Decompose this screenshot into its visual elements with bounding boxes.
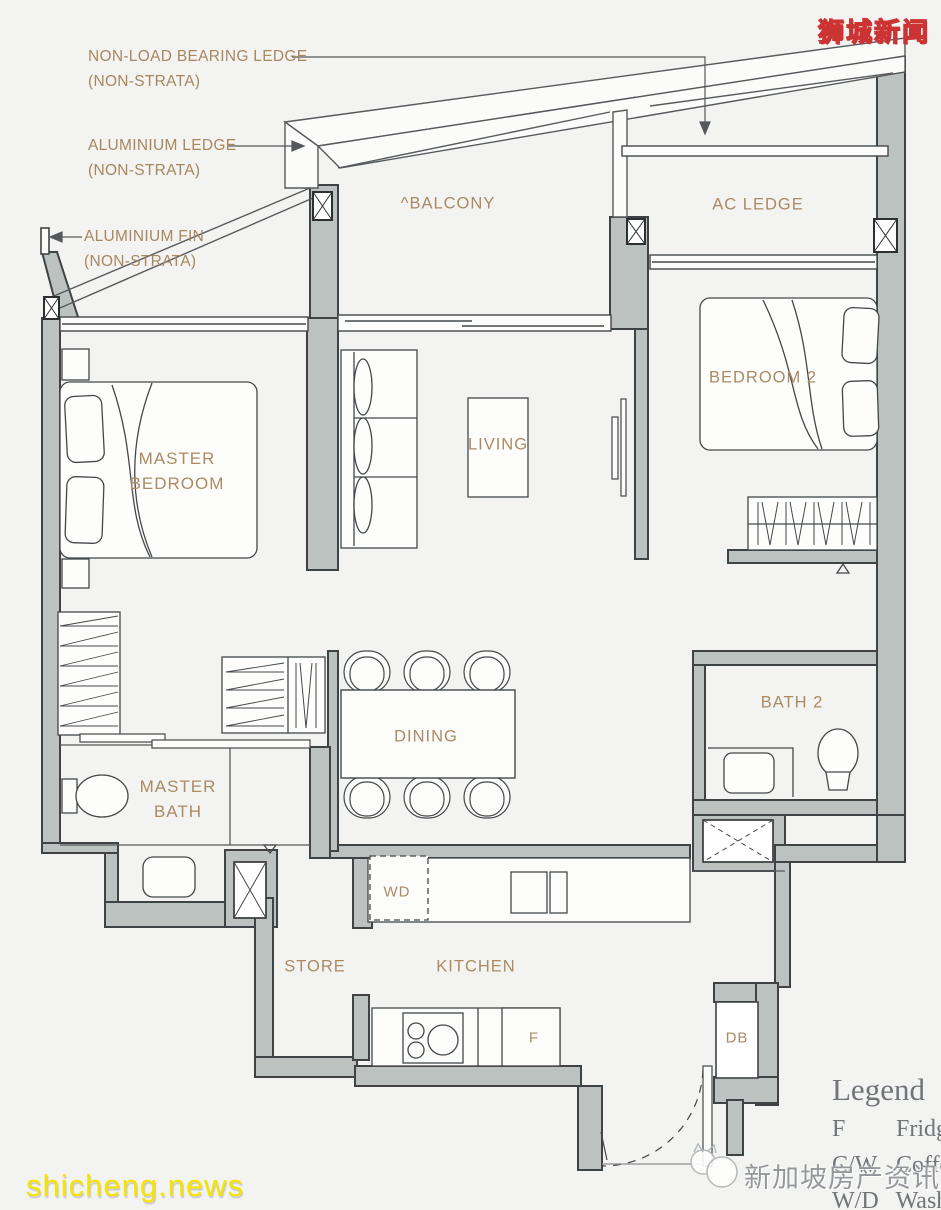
annotation-aluminium-fin: ALUMINIUM FIN (NON-STRATA) <box>84 224 204 274</box>
legend-value: Fridge <box>896 1116 941 1142</box>
annotation-line: (NON-STRATA) <box>88 158 236 183</box>
room-label-master-bedroom: MASTER BEDROOM <box>107 446 247 496</box>
room-label-wd: WD <box>384 884 411 901</box>
floor-plan-page: NON-LOAD BEARING LEDGE (NON-STRATA) ALUM… <box>0 0 941 1210</box>
annotation-line: (NON-STRATA) <box>88 69 307 94</box>
watermark-shicheng-news: shicheng.news <box>26 1168 244 1204</box>
legend-key: F <box>832 1116 890 1143</box>
room-label-dining: DINING <box>394 728 458 747</box>
room-label-ac-ledge: AC LEDGE <box>712 196 803 215</box>
room-label-kitchen: KITCHEN <box>436 958 515 977</box>
room-label-balcony: ^BALCONY <box>401 195 496 214</box>
room-label-db: DB <box>726 1030 749 1047</box>
annotation-non-load-bearing-ledge: NON-LOAD BEARING LEDGE (NON-STRATA) <box>88 44 307 94</box>
room-label-bath2: BATH 2 <box>761 694 824 713</box>
room-label-store: STORE <box>284 958 346 977</box>
room-label-fridge: F <box>529 1030 539 1047</box>
legend-row-fridge: F Fridge <box>832 1116 941 1143</box>
tv-console <box>612 399 626 496</box>
room-label-master-bath: MASTER BATH <box>123 774 233 824</box>
entrance-door <box>601 1066 712 1166</box>
annotation-aluminium-ledge: ALUMINIUM LEDGE (NON-STRATA) <box>88 133 236 183</box>
annotation-line: ALUMINIUM FIN <box>84 224 204 249</box>
sliding-door <box>80 734 310 748</box>
watermark-shicheng-cn: 狮城新闻 <box>818 12 930 49</box>
watermark-sg-property: 新加坡房产资讯 <box>744 1156 940 1195</box>
room-label-bedroom2: BEDROOM 2 <box>709 369 817 388</box>
annotation-line: ALUMINIUM LEDGE <box>88 133 236 158</box>
bedroom2-wardrobe <box>748 497 877 550</box>
master-wardrobe-mid <box>222 657 325 733</box>
legend-title: Legend <box>832 1072 941 1108</box>
aluminium-fin-bar <box>41 228 49 254</box>
bath2-fixtures <box>708 564 858 797</box>
room-label-living: LIVING <box>468 436 528 455</box>
sofa <box>341 350 417 548</box>
master-wardrobe-left <box>58 612 120 735</box>
annotation-line: NON-LOAD BEARING LEDGE <box>88 44 307 69</box>
annotation-line: (NON-STRATA) <box>84 249 204 274</box>
